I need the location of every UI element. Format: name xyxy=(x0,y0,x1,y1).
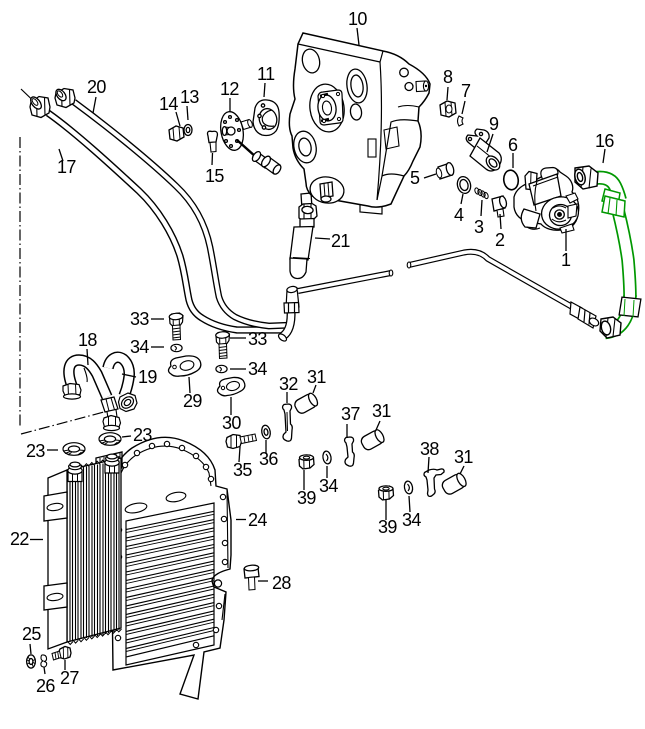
svg-text:14: 14 xyxy=(159,94,178,114)
svg-text:20: 20 xyxy=(87,77,106,97)
svg-text:22: 22 xyxy=(10,529,29,549)
svg-text:31: 31 xyxy=(372,401,391,421)
svg-text:34: 34 xyxy=(319,476,338,496)
svg-text:25: 25 xyxy=(22,624,41,644)
svg-text:35: 35 xyxy=(233,460,252,480)
svg-text:23: 23 xyxy=(26,441,45,461)
svg-text:13: 13 xyxy=(180,87,199,107)
svg-text:36: 36 xyxy=(259,449,278,469)
svg-text:9: 9 xyxy=(489,114,499,134)
svg-text:23: 23 xyxy=(133,425,152,445)
svg-text:4: 4 xyxy=(454,205,464,225)
svg-text:27: 27 xyxy=(60,668,79,688)
svg-text:3: 3 xyxy=(474,217,484,237)
svg-text:31: 31 xyxy=(307,367,326,387)
svg-text:8: 8 xyxy=(443,67,453,87)
svg-text:21: 21 xyxy=(331,231,350,251)
svg-text:5: 5 xyxy=(410,168,420,188)
svg-text:26: 26 xyxy=(36,676,55,696)
svg-text:28: 28 xyxy=(272,573,291,593)
svg-text:12: 12 xyxy=(220,79,239,99)
svg-text:39: 39 xyxy=(378,517,397,537)
svg-text:15: 15 xyxy=(205,166,224,186)
svg-text:33: 33 xyxy=(248,329,267,349)
svg-text:34: 34 xyxy=(402,510,421,530)
svg-text:29: 29 xyxy=(183,391,202,411)
svg-text:2: 2 xyxy=(495,230,505,250)
svg-text:1: 1 xyxy=(561,250,571,270)
svg-text:7: 7 xyxy=(461,81,471,101)
svg-text:32: 32 xyxy=(279,374,298,394)
svg-text:16: 16 xyxy=(595,131,614,151)
svg-text:34: 34 xyxy=(130,337,149,357)
svg-text:10: 10 xyxy=(348,9,367,29)
svg-text:34: 34 xyxy=(248,359,267,379)
svg-text:11: 11 xyxy=(257,64,275,84)
svg-text:38: 38 xyxy=(420,439,439,459)
svg-text:6: 6 xyxy=(508,135,518,155)
svg-text:18: 18 xyxy=(78,330,97,350)
svg-text:37: 37 xyxy=(341,404,360,424)
svg-text:31: 31 xyxy=(454,447,473,467)
svg-text:30: 30 xyxy=(222,413,241,433)
svg-text:33: 33 xyxy=(130,309,149,329)
svg-text:24: 24 xyxy=(248,510,267,530)
svg-text:17: 17 xyxy=(57,157,76,177)
svg-text:39: 39 xyxy=(297,488,316,508)
svg-text:19: 19 xyxy=(138,367,157,387)
